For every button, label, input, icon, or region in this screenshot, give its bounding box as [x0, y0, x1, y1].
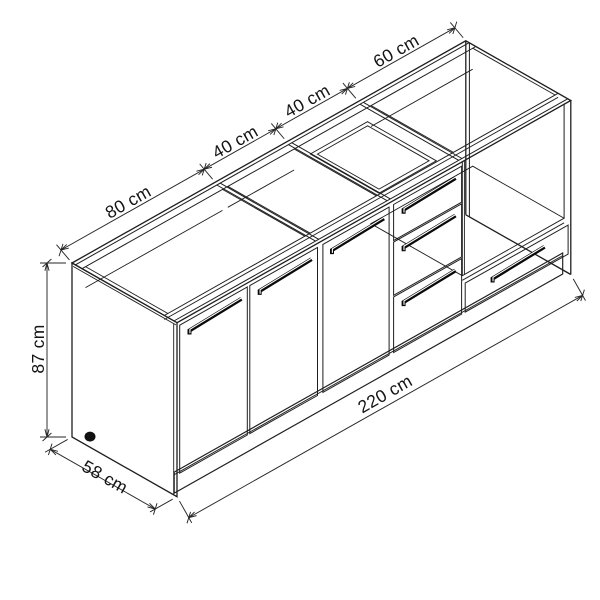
cabinet-dimension-diagram: 80 cm 40 cm 40 cm 60 cm 87 cm 58 cm 220 …: [0, 0, 600, 600]
dim-label-height-87cm: 87 cm: [28, 324, 48, 373]
adjustable-foot: [85, 432, 96, 442]
diagram-canvas: 80 cm 40 cm 40 cm 60 cm 87 cm 58 cm 220 …: [0, 0, 600, 600]
